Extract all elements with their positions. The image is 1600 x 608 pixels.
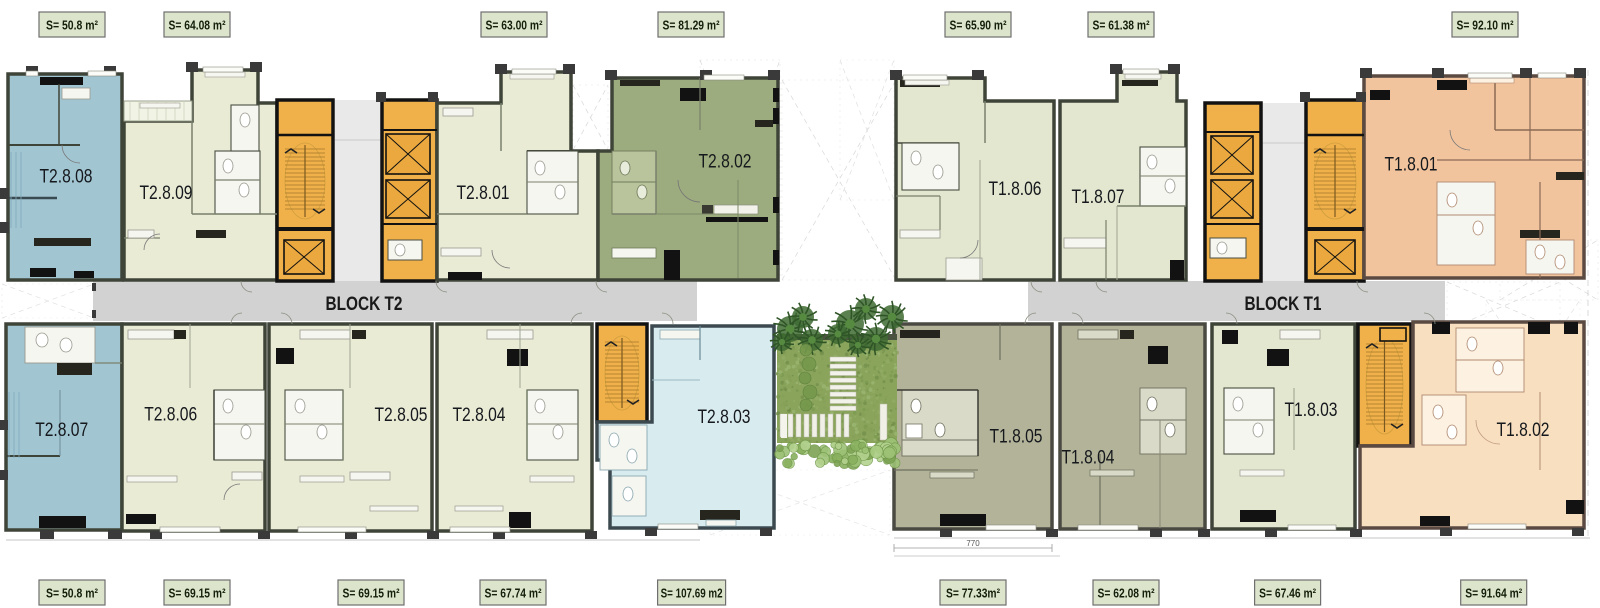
svg-text:T2.8.07: T2.8.07	[35, 419, 88, 441]
svg-text:T2.8.02: T2.8.02	[699, 151, 752, 173]
svg-text:T1.8.01: T1.8.01	[1385, 154, 1438, 176]
svg-text:S= 50.8 m²: S= 50.8 m²	[46, 587, 98, 601]
svg-text:770: 770	[966, 539, 980, 548]
svg-text:S= 69.15 m²: S= 69.15 m²	[343, 587, 400, 601]
svg-text:BLOCK T2: BLOCK T2	[326, 294, 403, 315]
svg-text:T1.8.02: T1.8.02	[1497, 419, 1550, 441]
svg-text:S= 77.33m²: S= 77.33m²	[946, 587, 1000, 601]
svg-text:T1.8.04: T1.8.04	[1062, 447, 1115, 469]
svg-text:BLOCK T1: BLOCK T1	[1245, 294, 1322, 315]
svg-text:S= 61.38 m²: S= 61.38 m²	[1093, 19, 1150, 33]
svg-text:T2.8.06: T2.8.06	[144, 404, 197, 426]
svg-text:S= 107.69 m2: S= 107.69 m2	[661, 587, 723, 601]
svg-text:T1.8.05: T1.8.05	[990, 426, 1043, 448]
svg-text:T2.8.01: T2.8.01	[457, 182, 510, 204]
svg-text:S= 62.08 m²: S= 62.08 m²	[1098, 587, 1155, 601]
svg-text:S= 67.46 m²: S= 67.46 m²	[1259, 587, 1316, 601]
svg-text:S= 69.15 m²: S= 69.15 m²	[169, 587, 226, 601]
svg-text:T1.8.03: T1.8.03	[1285, 399, 1338, 421]
svg-text:T2.8.03: T2.8.03	[698, 406, 751, 428]
svg-text:S= 63.00 m²: S= 63.00 m²	[486, 19, 543, 33]
svg-text:S= 67.74 m²: S= 67.74 m²	[485, 587, 542, 601]
svg-text:T2.8.09: T2.8.09	[140, 182, 193, 204]
svg-text:S= 65.90 m²: S= 65.90 m²	[950, 19, 1007, 33]
svg-text:T2.8.05: T2.8.05	[375, 404, 428, 426]
svg-text:T2.8.04: T2.8.04	[453, 404, 506, 426]
svg-text:S= 81.29 m²: S= 81.29 m²	[663, 19, 720, 33]
svg-text:S= 92.10 m²: S= 92.10 m²	[1457, 19, 1514, 33]
svg-text:T1.8.07: T1.8.07	[1072, 186, 1125, 208]
svg-text:S= 91.64 m²: S= 91.64 m²	[1465, 587, 1522, 601]
svg-text:T1.8.06: T1.8.06	[989, 178, 1042, 200]
svg-text:T2.8.08: T2.8.08	[40, 166, 93, 188]
svg-text:S= 50.8 m²: S= 50.8 m²	[46, 19, 98, 33]
svg-text:S= 64.08 m²: S= 64.08 m²	[169, 19, 226, 33]
